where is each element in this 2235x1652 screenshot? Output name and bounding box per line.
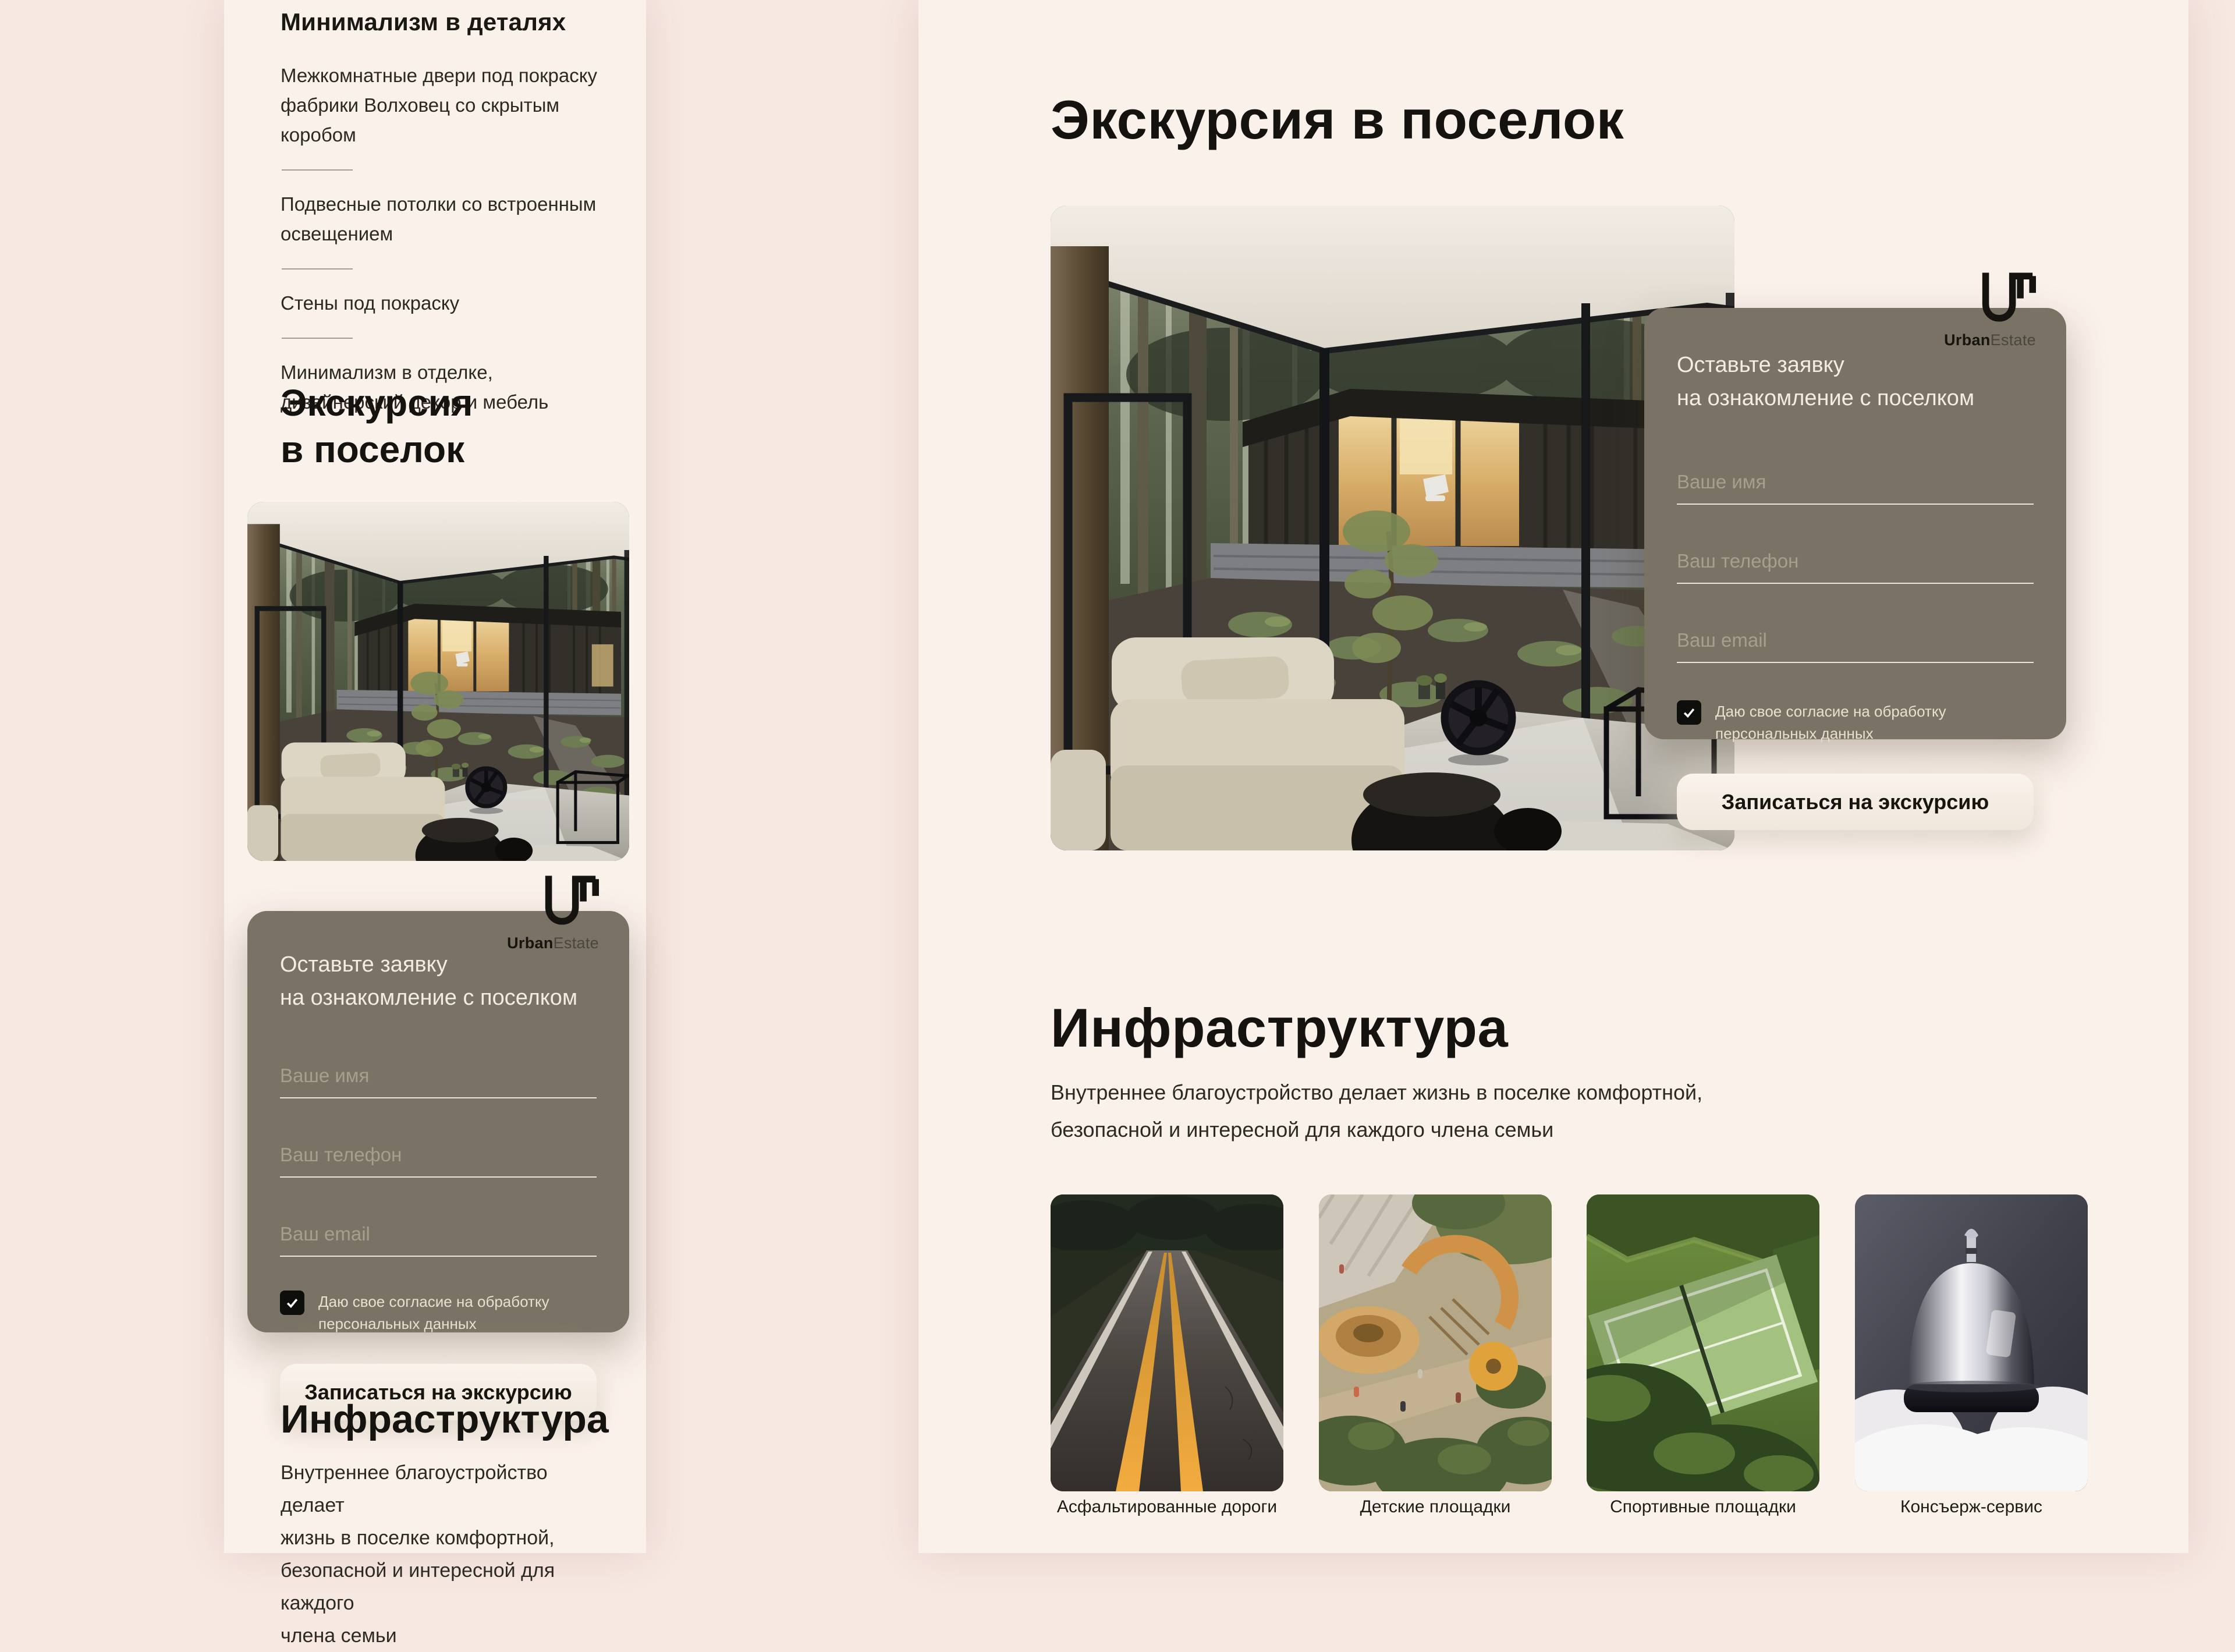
brand-logo: UrbanEstate: [471, 874, 599, 952]
text-line: члена семьи: [281, 1619, 606, 1652]
divider: [282, 338, 353, 339]
forest-house-illustration: [1051, 205, 1734, 850]
list-item: Подвесные потолки со встроенным освещени…: [281, 189, 606, 249]
brand-name-bold: Urban: [507, 934, 554, 952]
infrastructure-heading: Инфраструктура: [1051, 997, 1508, 1059]
email-input[interactable]: [1677, 609, 2034, 663]
form-title-line: на ознакомление с поселком: [280, 981, 597, 1015]
submit-button[interactable]: Записаться на экскурсию: [1677, 774, 2034, 830]
consent-label-line: Даю свое согласие на обработку: [1715, 700, 1946, 722]
text-line: жизнь в поселке комфортной,: [281, 1522, 606, 1554]
name-input[interactable]: [1677, 451, 2034, 505]
desktop-artboard: Экскурсия в поселок UrbanEstate Оставьте…: [918, 0, 2188, 1553]
asphalt-road-illustration: [1051, 1194, 1283, 1491]
request-form-card: UrbanEstate Оставьте заявку на ознакомле…: [1644, 308, 2066, 739]
consent-checkbox[interactable]: [1677, 700, 1701, 725]
consent-label-line: Даю свое согласие на обработку: [318, 1291, 549, 1313]
text-line: Внутреннее благоустройство делает: [281, 1456, 606, 1522]
consent-checkbox[interactable]: [280, 1291, 304, 1315]
brand-logo: UrbanEstate: [1908, 271, 2036, 349]
consent-label-line: персональных данных: [318, 1313, 549, 1335]
name-input[interactable]: [280, 1045, 597, 1098]
infrastructure-photo-road: [1051, 1194, 1283, 1491]
list-item: Межкомнатные двери под покраску фабрики …: [281, 61, 606, 150]
consent-label: Даю свое согласие на обработку персональ…: [1715, 700, 1946, 745]
phone-input[interactable]: [1677, 530, 2034, 584]
details-heading: Минимализм в деталях: [281, 8, 566, 36]
infrastructure-photo-sports: [1587, 1194, 1819, 1491]
tour-heading-desktop: Экскурсия в поселок: [1051, 88, 1624, 151]
urban-estate-logo-icon: [1980, 271, 2036, 331]
infrastructure-heading: Инфраструктура: [281, 1396, 609, 1442]
kids-playground-illustration: [1319, 1194, 1552, 1491]
forest-house-photo: [247, 502, 629, 861]
text-line: безопасной и интересной для каждого член…: [1051, 1111, 2069, 1148]
checkmark-icon: [1680, 704, 1698, 721]
consent-label: Даю свое согласие на обработку персональ…: [318, 1291, 549, 1335]
form-fields: [280, 1045, 597, 1257]
forest-house-photo: [1051, 205, 1734, 850]
sports-courts-illustration: [1587, 1194, 1819, 1491]
infrastructure-text: Внутреннее благоустройство делает жизнь …: [281, 1456, 606, 1652]
divider: [282, 169, 353, 171]
phone-input[interactable]: [280, 1124, 597, 1178]
form-title: Оставьте заявку на ознакомление с поселк…: [280, 948, 597, 1015]
brand-name-light: Estate: [1991, 331, 2036, 349]
tour-heading-line: Экскурсия: [281, 380, 473, 426]
concierge-bell-illustration: [1855, 1194, 2088, 1491]
form-title-line: Оставьте заявку: [280, 948, 597, 981]
photo-caption: Спортивные площадки: [1587, 1497, 1819, 1517]
design-canvas: { "brand": { "name_bold": "Urban", "name…: [0, 0, 2235, 1553]
infrastructure-photo-concierge: [1855, 1194, 2088, 1491]
form-title-line: Оставьте заявку: [1677, 349, 2034, 382]
photo-caption: Детские площадки: [1319, 1497, 1552, 1517]
mobile-artboard: Минимализм в деталях Межкомнатные двери …: [224, 0, 646, 1553]
request-form-card: UrbanEstate Оставьте заявку на ознакомле…: [247, 911, 629, 1332]
details-list: Межкомнатные двери под покраску фабрики …: [281, 61, 606, 417]
brand-wordmark: UrbanEstate: [1908, 331, 2036, 349]
form-title-line: на ознакомление с поселком: [1677, 382, 2034, 415]
urban-estate-logo-icon: [543, 874, 599, 934]
form-title: Оставьте заявку на ознакомление с поселк…: [1677, 349, 2034, 415]
tour-heading-line: в поселок: [281, 426, 473, 473]
forest-house-illustration: [247, 502, 629, 861]
list-item: Стены под покраску: [281, 288, 606, 318]
divider: [282, 268, 353, 270]
text-line: безопасной и интересной для каждого: [281, 1554, 606, 1619]
checkmark-icon: [283, 1294, 301, 1311]
consent-row: Даю свое согласие на обработку персональ…: [1677, 700, 2034, 745]
brand-name-light: Estate: [554, 934, 599, 952]
infrastructure-text: Внутреннее благоустройство делает жизнь …: [1051, 1074, 2069, 1148]
infrastructure-photo-playground: [1319, 1194, 1552, 1491]
text-line: Внутреннее благоустройство делает жизнь …: [1051, 1074, 2069, 1111]
form-fields: [1677, 451, 2034, 663]
email-input[interactable]: [280, 1203, 597, 1257]
tour-heading-mobile: Экскурсия в поселок: [281, 380, 473, 473]
photo-caption: Асфальтированные дороги: [1051, 1497, 1283, 1517]
photo-caption: Консъерж-сервис: [1855, 1497, 2088, 1517]
consent-label-line: персональных данных: [1715, 722, 1946, 745]
brand-name-bold: Urban: [1944, 331, 1991, 349]
consent-row: Даю свое согласие на обработку персональ…: [280, 1291, 597, 1335]
brand-wordmark: UrbanEstate: [471, 934, 599, 952]
